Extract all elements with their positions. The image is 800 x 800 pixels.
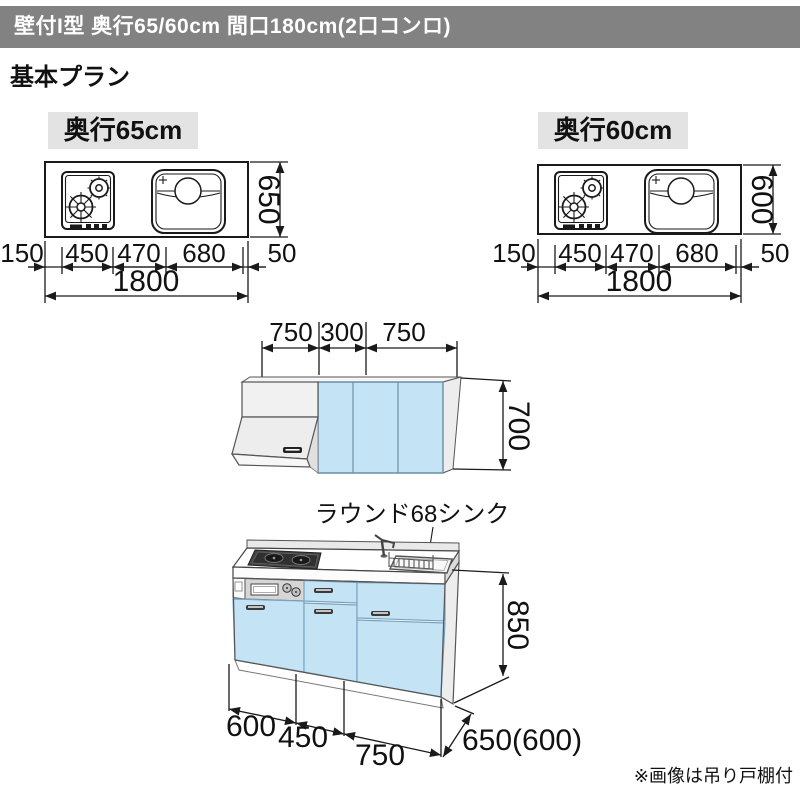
plan-60-total-dim: 1800 [538,265,741,298]
dim-label: 850 [501,600,534,650]
plan-60-label: 奥行60cm [554,115,673,145]
range-hood [232,382,318,473]
footnote: ※画像は吊り戸棚付 [634,766,793,786]
dim-label: 650 [252,174,285,224]
dim-label: 750 [382,317,425,347]
section-title: 基本プラン [10,57,130,92]
dim-label: 450 [558,238,601,268]
dim-label: 470 [117,238,160,268]
dim-label: 750 [355,739,405,772]
dim-label: 470 [610,238,653,268]
dim-label: 150 [492,238,535,268]
wall-cabinet-width-dims: 750 300 750 [262,317,457,383]
plan-65-depth-dim: 650 [250,162,288,237]
base-door-middle [304,603,357,682]
dim-label: 450 [65,238,108,268]
plan-65-total-dim: 1800 [45,265,248,298]
title-bar: 壁付I型 奥行65/60cm 間口180cm(2口コンロ) [0,6,800,48]
dim-label: 600 [745,174,778,224]
base-drawer-right [357,583,445,622]
wall-cabinet-doors [318,382,443,473]
plan-65-label: 奥行65cm [64,115,183,145]
page: 壁付I型 奥行65/60cm 間口180cm(2口コンロ) 基本プラン [0,0,800,800]
plan-60-depth-dim: 600 [743,165,781,234]
base-unit: ラウンド68シンク [226,501,582,772]
wall-cabinet-height-dim: 700 [453,378,535,470]
sink-type-label: ラウンド68シンク [315,501,510,528]
grill-panel [245,579,304,602]
base-height-dim: 850 [452,570,534,703]
dim-label: 50 [761,238,790,268]
dim-label: 50 [268,238,297,268]
base-depth-dim: 650(600) [443,706,582,757]
grill-display [251,584,278,595]
wall-cabinet: 750 300 750 700 [232,317,535,473]
diagram-canvas: 奥行65cm 650 [0,95,800,800]
plan-60: 奥行60cm 600 [492,112,789,303]
plan-65: 奥行65cm 650 [0,112,296,303]
wall-cabinet-side-panel [443,377,461,473]
filler-vent [235,582,242,591]
dim-label: 700 [502,401,535,451]
dim-label: 650(600) [462,724,582,757]
dim-label: 300 [320,317,363,347]
dim-label: 680 [675,238,718,268]
wall-cabinet-top-edge [242,377,461,382]
dim-label: 600 [226,710,276,743]
dim-label: 1800 [113,265,180,298]
dim-label: 1800 [606,265,673,298]
dim-label: 750 [269,317,312,347]
dim-label: 150 [0,238,43,268]
dim-label: 680 [182,238,225,268]
dim-label: 450 [278,721,328,754]
